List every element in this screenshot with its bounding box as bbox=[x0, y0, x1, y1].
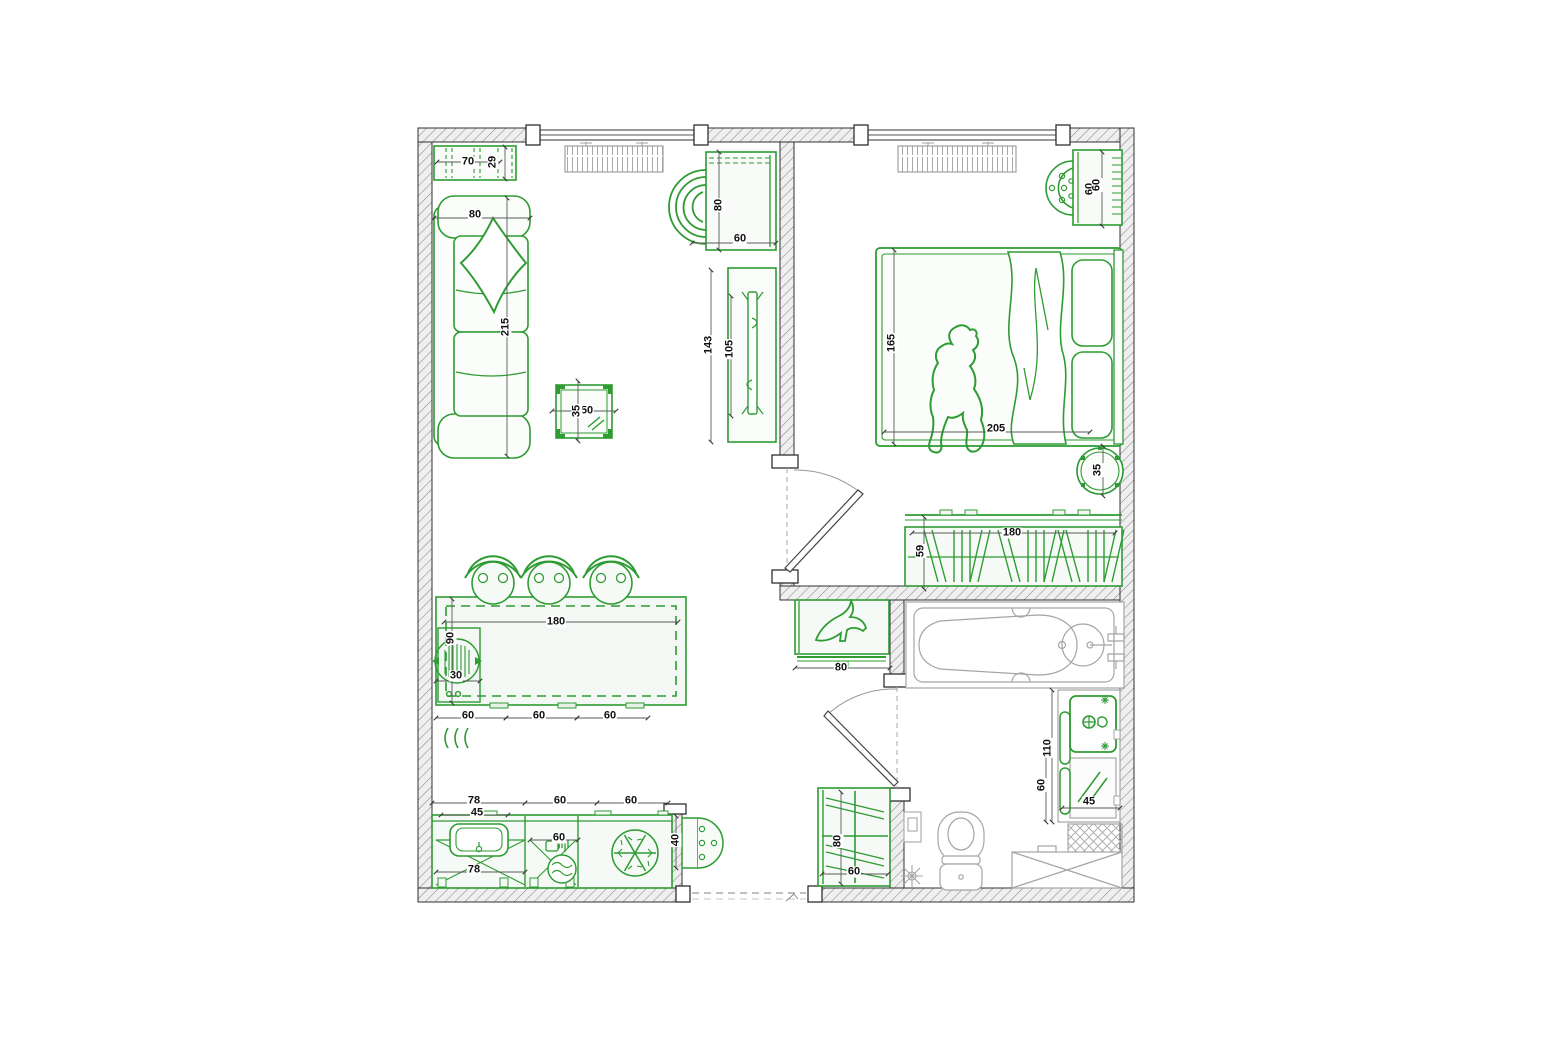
dim-counter-60a: 60 bbox=[553, 796, 567, 807]
dim-roundstool-35: 35 bbox=[1093, 463, 1104, 477]
dim-shoe-80: 80 bbox=[834, 663, 848, 674]
dim-console-width: 70 bbox=[461, 157, 475, 168]
dim-entry-40: 40 bbox=[671, 833, 682, 847]
dim-tv-width: 105 bbox=[725, 339, 736, 359]
dim-vanity-45: 45 bbox=[1082, 797, 1096, 808]
laundry-cabinet bbox=[1012, 846, 1122, 888]
toilet-brush bbox=[901, 865, 923, 887]
dim-sofa-length: 215 bbox=[501, 317, 512, 337]
sofa bbox=[434, 196, 530, 458]
bathtub bbox=[906, 602, 1124, 688]
dim-bed-205: 205 bbox=[986, 424, 1006, 435]
radiator-living bbox=[565, 142, 663, 172]
armchair bbox=[669, 170, 706, 244]
bedroom-door bbox=[785, 468, 863, 572]
window-top-left bbox=[540, 130, 694, 140]
shoe-cabinet bbox=[795, 600, 889, 666]
dim-vanity-110: 110 bbox=[1043, 738, 1054, 758]
washing-machine bbox=[548, 855, 576, 883]
dim-table-depth: 35 bbox=[572, 404, 583, 418]
dim-wardrobe-180: 180 bbox=[1002, 528, 1022, 539]
dim-dresser-60b: 60 bbox=[1092, 178, 1103, 192]
dim-bed-165: 165 bbox=[887, 333, 898, 353]
wardrobe bbox=[905, 510, 1124, 586]
dressing-stool bbox=[1046, 161, 1073, 215]
kitchen-island bbox=[436, 597, 686, 708]
dim-stool-1: 60 bbox=[461, 711, 475, 722]
dim-closet-80: 80 bbox=[833, 834, 844, 848]
dim-counter-45: 45 bbox=[470, 808, 484, 819]
dim-counter-60b: 60 bbox=[624, 796, 638, 807]
dim-closet-60: 60 bbox=[847, 867, 861, 878]
toilet-paper-holder bbox=[904, 812, 921, 842]
toilet bbox=[938, 812, 984, 890]
radiator-bedroom bbox=[898, 142, 1016, 172]
entrance-opening bbox=[692, 893, 806, 901]
dim-sofa-width: 80 bbox=[468, 210, 482, 221]
dim-island-length: 180 bbox=[546, 617, 566, 628]
dim-sidetable-width: 60 bbox=[733, 234, 747, 245]
dim-counter-78in: 78 bbox=[467, 865, 481, 876]
dim-island-depth: 90 bbox=[446, 631, 457, 645]
dim-island-sink: 30 bbox=[449, 671, 463, 682]
bed bbox=[876, 248, 1123, 446]
dim-counter-78: 78 bbox=[467, 796, 481, 807]
floor-plan-page: 70 29 80 215 50 35 80 60 143 105 180 90 … bbox=[0, 0, 1556, 1037]
dim-stool-2: 60 bbox=[532, 711, 546, 722]
bar-stools bbox=[465, 556, 639, 604]
entry-console bbox=[682, 818, 723, 868]
floor-plan-drawing bbox=[0, 0, 1556, 1037]
dim-vanity-60: 60 bbox=[1037, 778, 1048, 792]
bathroom-door bbox=[824, 687, 898, 788]
dim-counter-60in: 60 bbox=[552, 833, 566, 844]
dim-tv-length: 143 bbox=[704, 335, 715, 355]
kitchen-sink bbox=[450, 824, 508, 856]
dim-wardrobe-59: 59 bbox=[916, 544, 927, 558]
dim-stool-3: 60 bbox=[603, 711, 617, 722]
window-top-right bbox=[868, 130, 1056, 140]
heating-coil bbox=[445, 728, 468, 748]
dim-console-depth: 29 bbox=[488, 155, 499, 169]
dim-sidetable-depth: 80 bbox=[714, 198, 725, 212]
